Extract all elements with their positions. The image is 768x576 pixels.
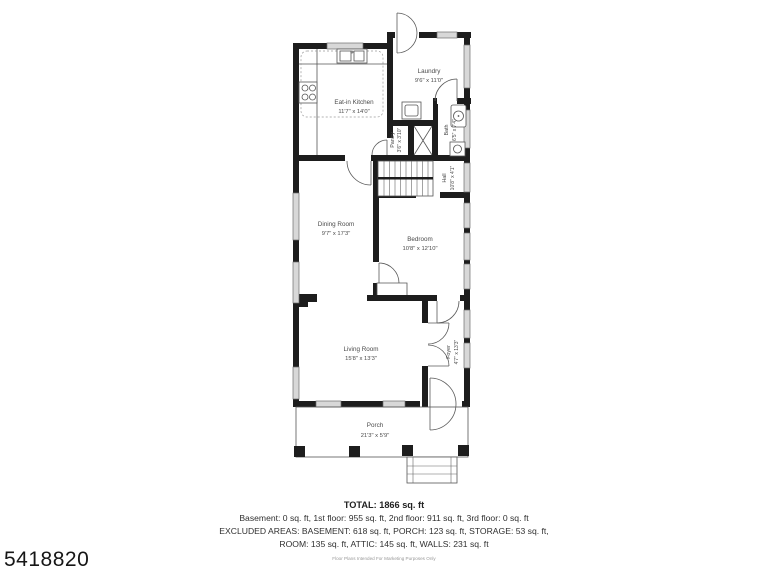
stairs — [378, 161, 433, 196]
svg-text:6'5" x 7'4": 6'5" x 7'4" — [452, 119, 458, 141]
svg-text:Living Room: Living Room — [344, 346, 379, 353]
svg-text:4'7" x 13'3": 4'7" x 13'3" — [454, 339, 460, 364]
bedroom-closet — [377, 283, 407, 295]
svg-text:Dining Room: Dining Room — [318, 221, 354, 228]
svg-text:Laundry: Laundry — [418, 68, 442, 75]
front-entry-door — [430, 378, 456, 430]
porch-posts — [294, 445, 469, 457]
svg-text:Bedroom: Bedroom — [407, 236, 433, 243]
washer — [402, 102, 421, 119]
svg-text:10'8" x 4'1": 10'8" x 4'1" — [450, 165, 456, 190]
svg-text:9'7" x 17'3": 9'7" x 17'3" — [322, 231, 351, 237]
windows — [293, 32, 470, 407]
floor-plan-drawing: Laundry 9'6" x 11'0" Eat-in Kitchen 11'7… — [0, 0, 768, 576]
stove — [299, 82, 317, 103]
dining-door — [347, 161, 371, 185]
foyer-bedroom-door — [437, 301, 459, 323]
kitchen-sink — [337, 49, 367, 63]
svg-text:Hall: Hall — [442, 173, 448, 182]
listing-photo-id: 5418820 — [4, 548, 89, 572]
area-summary: TOTAL: 1866 sq. ft Basement: 0 sq. ft, 1… — [0, 499, 768, 561]
room-label-porch: Porch 21'3" x 5'9" — [361, 422, 390, 439]
room-label-bedroom: Bedroom 10'8" x 12'10" — [402, 236, 437, 252]
room-label-laundry: Laundry 9'6" x 11'0" — [415, 68, 443, 84]
room-label-dining: Dining Room 9'7" x 17'3" — [318, 221, 354, 237]
bath-sink — [450, 142, 465, 156]
rear-entry-door — [397, 13, 417, 53]
floor-plan-page: Laundry 9'6" x 11'0" Eat-in Kitchen 11'7… — [0, 0, 768, 576]
excluded-areas-2: ROOM: 135 sq. ft, ATTIC: 145 sq. ft, WAL… — [0, 538, 768, 551]
total-area: TOTAL: 1866 sq. ft — [0, 499, 768, 512]
svg-text:Porch: Porch — [367, 422, 384, 429]
svg-text:11'7" x 14'0": 11'7" x 14'0" — [338, 109, 369, 115]
room-label-living: Living Room 15'8" x 13'3" — [344, 346, 379, 362]
svg-text:3'6" x 3'10": 3'6" x 3'10" — [397, 127, 403, 152]
room-label-hall: Hall 10'8" x 4'1" — [442, 165, 456, 190]
excluded-areas-1: EXCLUDED AREAS: BASEMENT: 618 sq. ft, PO… — [0, 525, 768, 538]
svg-text:Bath: Bath — [444, 124, 450, 135]
marketing-disclaimer: Floor Plans Intended For Marketing Purpo… — [0, 556, 768, 561]
door-swings — [347, 13, 459, 430]
bedroom-door — [379, 263, 399, 283]
svg-text:15'8" x 13'3": 15'8" x 13'3" — [345, 356, 377, 362]
room-label-kitchen: Eat-in Kitchen 11'7" x 14'0" — [334, 99, 374, 115]
storage-closet-x — [414, 126, 432, 155]
svg-text:Eat-in Kitchen: Eat-in Kitchen — [334, 99, 374, 106]
svg-text:21'3" x 5'9": 21'3" x 5'9" — [361, 433, 390, 439]
floor-areas: Basement: 0 sq. ft, 1st floor: 955 sq. f… — [0, 512, 768, 525]
pantry-door — [372, 140, 387, 155]
svg-text:10'8" x 12'10": 10'8" x 12'10" — [402, 246, 437, 252]
porch-structure — [294, 407, 469, 483]
entry-steps — [407, 457, 457, 483]
svg-text:Pantry: Pantry — [390, 132, 396, 148]
walls — [293, 32, 471, 407]
svg-text:9'6" x 11'0": 9'6" x 11'0" — [415, 78, 443, 84]
svg-text:Foyer: Foyer — [446, 345, 452, 359]
